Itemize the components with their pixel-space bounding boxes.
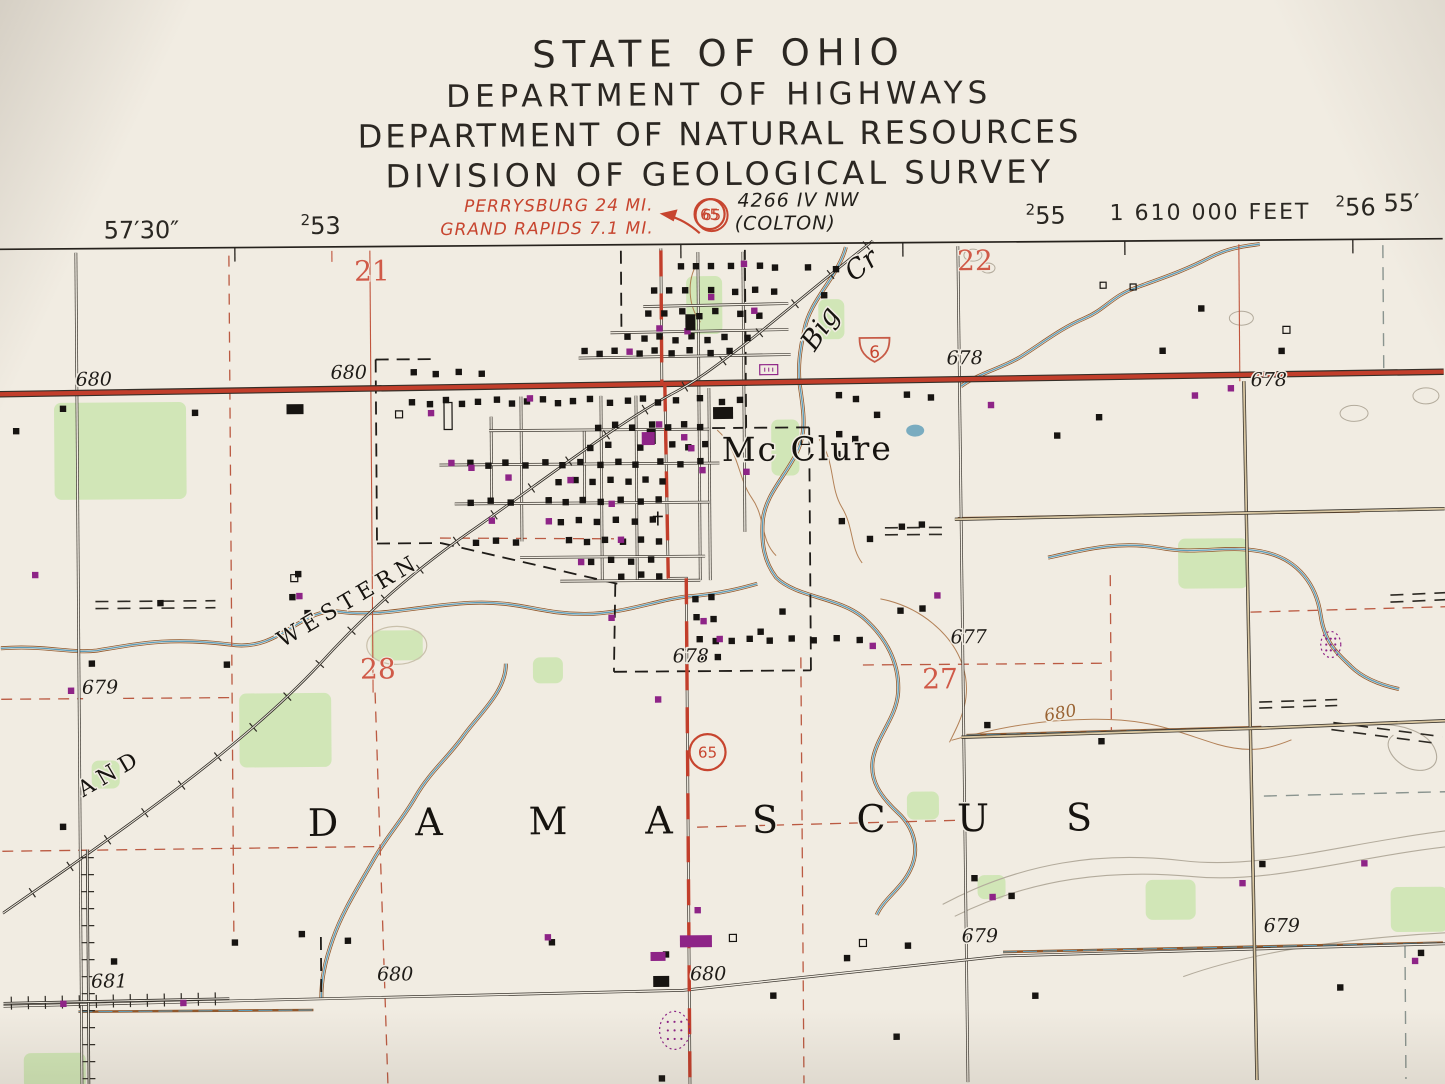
building-magenta: [608, 501, 614, 507]
elevation-label: 681: [91, 970, 127, 992]
building: [752, 287, 758, 293]
section-line-red-dashed: [863, 663, 1109, 665]
section-line-red: [1239, 244, 1240, 381]
road-core: [584, 430, 585, 503]
building-open: [396, 411, 403, 418]
building: [704, 337, 710, 343]
building: [589, 479, 595, 485]
building: [625, 478, 631, 484]
building-magenta: [708, 294, 714, 300]
corporate-boundary-dashed: [613, 584, 616, 672]
elevation-label: 678: [946, 347, 982, 369]
section-line-red-dashed: [375, 692, 388, 1084]
elevation-label: 679: [962, 925, 998, 947]
building-magenta: [656, 325, 662, 331]
building: [299, 931, 305, 937]
building: [874, 412, 880, 418]
building-magenta: [989, 894, 995, 900]
building-magenta: [546, 518, 552, 524]
building: [555, 400, 561, 406]
building: [737, 397, 743, 403]
section-line-red-dashed: [1, 699, 83, 700]
building: [833, 266, 839, 272]
building: [805, 264, 811, 270]
building-magenta: [741, 261, 747, 267]
woodland-patch: [24, 1053, 86, 1084]
building-magenta: [626, 348, 632, 354]
building: [89, 660, 95, 666]
elevation-label: 679: [1264, 915, 1300, 937]
building: [584, 539, 590, 545]
building: [649, 421, 655, 427]
building: [612, 422, 618, 428]
building-magenta: [180, 1000, 186, 1006]
building: [192, 410, 198, 416]
building: [628, 558, 634, 564]
building: [853, 396, 859, 402]
building-large: [653, 976, 669, 987]
land-line-gray-dashed: [1383, 245, 1384, 375]
building: [672, 337, 678, 343]
building: [594, 519, 600, 525]
section-line-red-dashed: [1250, 607, 1445, 612]
building: [856, 637, 862, 643]
building: [719, 399, 725, 405]
township-name-damascus-letter: A: [644, 798, 673, 842]
building: [726, 348, 732, 354]
building: [708, 594, 714, 600]
building-magenta: [688, 445, 694, 451]
building: [608, 557, 614, 563]
building-magenta: [468, 465, 474, 471]
building: [459, 401, 465, 407]
us-route-6-number: 6: [869, 343, 880, 363]
building: [729, 638, 735, 644]
railroad-name: AND: [73, 745, 148, 803]
building: [558, 519, 564, 525]
building: [427, 401, 433, 407]
building: [617, 497, 623, 503]
field-ditch-dashes: [1331, 729, 1439, 745]
building-magenta: [988, 402, 994, 408]
contour-blob: [1340, 405, 1368, 421]
building: [607, 400, 613, 406]
building-magenta: [1228, 385, 1234, 391]
building: [513, 539, 519, 545]
building: [507, 499, 513, 505]
building: [587, 396, 593, 402]
paper-sheet: STATE OF OHIO DEPARTMENT OF HIGHWAYS DEP…: [0, 0, 1445, 1084]
building: [651, 287, 657, 293]
corporate-boundary-dashed: [614, 670, 811, 671]
building: [893, 1034, 899, 1040]
land-line-gray-dashed: [1264, 792, 1445, 796]
building: [542, 459, 548, 465]
building: [648, 556, 654, 562]
town-name-mcclure: Mc Clure: [722, 429, 893, 469]
building: [224, 661, 230, 667]
building-magenta: [656, 421, 662, 427]
building: [721, 334, 727, 340]
stream-bed: [319, 664, 508, 999]
building-magenta: [699, 467, 705, 473]
building: [696, 636, 702, 642]
building: [638, 536, 644, 542]
section-number: 21: [354, 254, 390, 287]
field-ditch-dashes: [95, 601, 215, 602]
field-ditch-dashes: [1390, 593, 1445, 595]
building: [577, 459, 583, 465]
building: [971, 875, 977, 881]
orchard-dot: [680, 1038, 682, 1040]
building-large-magenta: [651, 952, 666, 961]
corporate-boundary-dashed: [621, 251, 622, 333]
building: [289, 594, 295, 600]
orchard-dot: [667, 1021, 669, 1023]
building: [757, 262, 763, 268]
building: [636, 350, 642, 356]
building: [602, 537, 608, 543]
building: [607, 477, 613, 483]
building: [737, 311, 743, 317]
building: [844, 955, 850, 961]
building: [905, 942, 911, 948]
contour-label: 680: [1043, 701, 1079, 727]
building: [728, 263, 734, 269]
section-line-red-dashed: [697, 820, 960, 827]
building: [919, 521, 925, 527]
orchard-dot: [680, 1029, 682, 1031]
building: [833, 635, 839, 641]
woodland-patch: [239, 693, 332, 768]
elevation-label: 680: [690, 963, 726, 985]
building-open: [1283, 326, 1290, 333]
elevation-label: 680: [377, 963, 413, 985]
elevation-label: 679: [82, 676, 118, 698]
woodland-patch: [533, 657, 563, 683]
building-magenta: [681, 434, 687, 440]
township-name-damascus-letter: C: [856, 797, 885, 841]
building: [677, 461, 683, 467]
building: [919, 605, 925, 611]
building: [678, 263, 684, 269]
building: [659, 478, 665, 484]
building: [715, 654, 721, 660]
building: [1418, 950, 1424, 956]
building: [588, 559, 594, 565]
building: [1278, 348, 1284, 354]
building: [641, 335, 647, 341]
building-magenta: [545, 934, 551, 940]
building-magenta: [296, 593, 302, 599]
contour-blob: [1413, 388, 1439, 404]
building-large: [685, 314, 695, 330]
building: [570, 398, 576, 404]
building: [655, 496, 661, 502]
building: [587, 445, 593, 451]
building: [899, 523, 905, 529]
township-name-damascus-letter: S: [1066, 795, 1092, 839]
building-magenta: [578, 559, 584, 565]
building-magenta: [1239, 880, 1245, 886]
section-line-red-dashed: [229, 256, 234, 942]
field-ditch-dashes: [1390, 600, 1445, 602]
building-magenta: [716, 636, 722, 642]
building-magenta: [505, 474, 511, 480]
section-number: 27: [922, 662, 958, 695]
section-line-red-dashed: [1110, 575, 1111, 730]
building: [522, 462, 528, 468]
contour-blob: [1229, 311, 1253, 325]
elevation-label: 680: [76, 368, 112, 390]
building: [562, 499, 568, 505]
township-name-damascus-letter: M: [528, 799, 567, 843]
building-magenta: [1412, 958, 1418, 964]
building: [473, 540, 479, 546]
building: [710, 616, 716, 622]
building: [540, 396, 546, 402]
building: [433, 371, 439, 377]
building: [696, 313, 702, 319]
building-open: [859, 939, 866, 946]
building-magenta: [60, 1001, 66, 1007]
building-magenta: [655, 696, 661, 702]
township-name-damascus-letter: S: [752, 798, 778, 842]
building: [1259, 861, 1265, 867]
building: [479, 371, 485, 377]
building: [656, 538, 662, 544]
building-magenta: [743, 469, 749, 475]
building: [655, 399, 661, 405]
building-magenta: [428, 410, 434, 416]
building: [157, 600, 163, 606]
section-number: 28: [360, 652, 396, 685]
orchard-dot: [1330, 643, 1332, 645]
building: [673, 397, 679, 403]
building-large: [286, 404, 303, 414]
orchard-dot: [1330, 649, 1332, 651]
section-number: 22: [957, 244, 993, 277]
building: [681, 421, 687, 427]
highway-red-fill: [0, 372, 1444, 395]
building: [1159, 348, 1165, 354]
building: [467, 500, 473, 506]
building-open: [1100, 282, 1106, 288]
building: [509, 400, 515, 406]
orchard-dot: [680, 1021, 682, 1023]
building: [679, 308, 685, 314]
building: [494, 396, 500, 402]
building: [984, 722, 990, 728]
building: [732, 289, 738, 295]
woodland-patch: [1391, 887, 1445, 932]
building: [904, 391, 910, 397]
building: [632, 461, 638, 467]
building: [669, 441, 675, 447]
field-ditch-dashes: [1259, 699, 1337, 702]
orchard-dot: [674, 1038, 676, 1040]
building: [928, 394, 934, 400]
township-name-damascus-letter: U: [957, 796, 989, 840]
building: [897, 607, 903, 613]
building: [708, 287, 714, 293]
building: [485, 462, 491, 468]
building: [629, 424, 635, 430]
section-line-red-dashed: [2, 847, 380, 852]
building: [637, 444, 643, 450]
orchard-dot: [673, 1029, 675, 1031]
building-magenta: [694, 907, 700, 913]
township-name-damascus-letter: D: [308, 801, 339, 845]
building-magenta: [32, 572, 38, 578]
building: [456, 369, 462, 375]
building: [1054, 432, 1060, 438]
pond: [906, 425, 924, 437]
building: [576, 517, 582, 523]
elevation-label: 678: [1251, 369, 1287, 391]
building: [779, 608, 785, 614]
building-magenta: [870, 643, 876, 649]
building: [605, 442, 611, 448]
road-core-tan: [1244, 381, 1257, 1080]
building: [637, 498, 643, 504]
building: [666, 287, 672, 293]
section-line-red-dashed: [123, 698, 231, 699]
route-65-shield-number: 65: [700, 206, 719, 224]
building: [708, 263, 714, 269]
building: [13, 428, 19, 434]
map-photo: STATE OF OHIO DEPARTMENT OF HIGHWAYS DEP…: [0, 0, 1445, 1084]
woodland-patch: [1145, 880, 1195, 920]
building-magenta: [527, 395, 533, 401]
building: [411, 369, 417, 375]
building-magenta: [700, 618, 706, 624]
orchard-dot: [1325, 638, 1327, 640]
building: [707, 350, 713, 356]
building-large-magenta: [642, 432, 655, 445]
building: [656, 573, 662, 579]
building: [836, 392, 842, 398]
building-magenta: [618, 537, 624, 543]
section-line-red-dashed: [801, 657, 804, 1083]
building: [232, 939, 238, 945]
building: [60, 824, 66, 830]
building: [624, 333, 630, 339]
field-ditch-dashes: [1259, 705, 1337, 708]
building: [642, 476, 648, 482]
building: [581, 348, 587, 354]
building: [788, 635, 794, 641]
building: [613, 517, 619, 523]
stream-bank: [760, 247, 915, 916]
building: [1098, 738, 1104, 744]
building-magenta: [751, 308, 757, 314]
building-magenta: [567, 477, 573, 483]
building-magenta: [489, 517, 495, 523]
building: [60, 406, 66, 412]
building: [409, 399, 415, 405]
building: [771, 288, 777, 294]
building: [839, 518, 845, 524]
building: [566, 537, 572, 543]
building: [810, 637, 816, 643]
building: [651, 347, 657, 353]
building: [697, 458, 703, 464]
map-neatline: [0, 239, 1443, 250]
building: [686, 347, 692, 353]
elevation-label: 680: [331, 362, 367, 384]
building: [665, 424, 671, 430]
building: [767, 637, 773, 643]
building: [697, 424, 703, 430]
orchard-dot: [1325, 649, 1327, 651]
orchard-dot: [1334, 649, 1336, 651]
building: [596, 351, 602, 357]
building: [693, 614, 699, 620]
building: [744, 335, 750, 341]
orchard-dot: [1330, 638, 1332, 640]
section-line-red: [370, 251, 373, 693]
building: [668, 350, 674, 356]
building: [746, 636, 752, 642]
building: [645, 310, 651, 316]
ditch-bank: [78, 1010, 313, 1012]
map-canvas: 6565668068067867867967767868168068067967…: [0, 0, 1445, 1084]
building: [640, 395, 646, 401]
woodland-patch: [907, 791, 939, 819]
building: [821, 292, 827, 298]
stream-water: [960, 244, 1261, 386]
route-65-shield-number: 65: [698, 744, 717, 762]
building-large-magenta: [680, 935, 712, 947]
route-direction-arrowhead-icon: [660, 209, 678, 221]
building: [772, 264, 778, 270]
township-name-damascus-letter: A: [414, 800, 443, 844]
elevation-label: 678: [673, 645, 709, 667]
building: [770, 992, 776, 998]
orchard-dot: [1334, 638, 1336, 640]
elevation-label: 677: [950, 626, 987, 648]
building: [345, 938, 351, 944]
building-magenta: [1361, 860, 1367, 866]
building: [579, 497, 585, 503]
building-magenta: [1192, 392, 1198, 398]
field-ditch-dashes: [95, 608, 215, 609]
building-open: [444, 402, 452, 429]
building: [111, 958, 117, 964]
woodland-patch: [1178, 538, 1248, 589]
building: [656, 333, 662, 339]
building: [1198, 305, 1204, 311]
building: [1337, 984, 1343, 990]
woodland-patch: [54, 402, 187, 500]
building-large: [713, 407, 733, 419]
building: [682, 287, 688, 293]
orchard-dot: [667, 1038, 669, 1040]
contour-line-gray: [954, 847, 1445, 917]
orchard-dot: [1325, 643, 1327, 645]
building-magenta: [448, 460, 454, 466]
building-open: [729, 934, 736, 941]
building: [502, 459, 508, 465]
building: [595, 425, 601, 431]
building-magenta: [934, 592, 940, 598]
orchard-dot: [667, 1029, 669, 1031]
building: [1008, 893, 1014, 899]
building: [475, 399, 481, 405]
building: [615, 459, 621, 465]
land-line-gray-dashed: [1405, 945, 1406, 1079]
